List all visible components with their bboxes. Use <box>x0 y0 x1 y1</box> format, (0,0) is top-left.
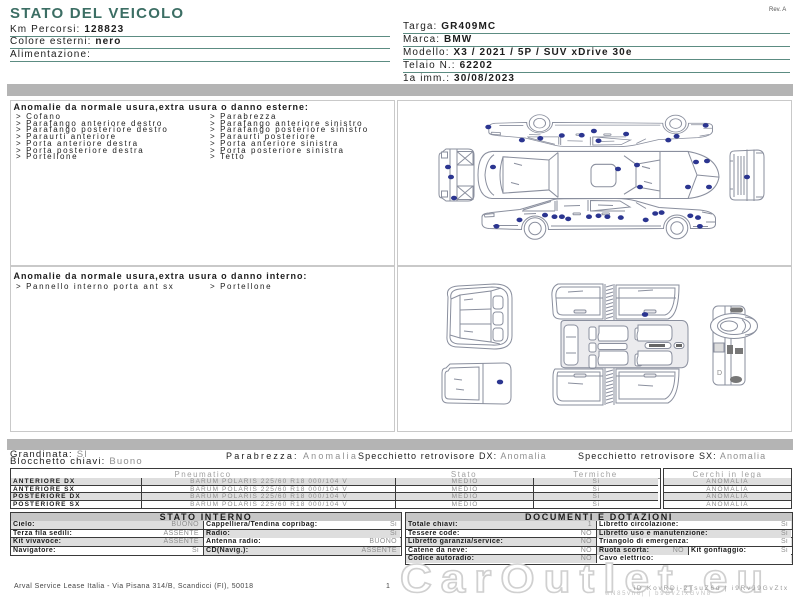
svg-text:D: D <box>717 370 722 377</box>
